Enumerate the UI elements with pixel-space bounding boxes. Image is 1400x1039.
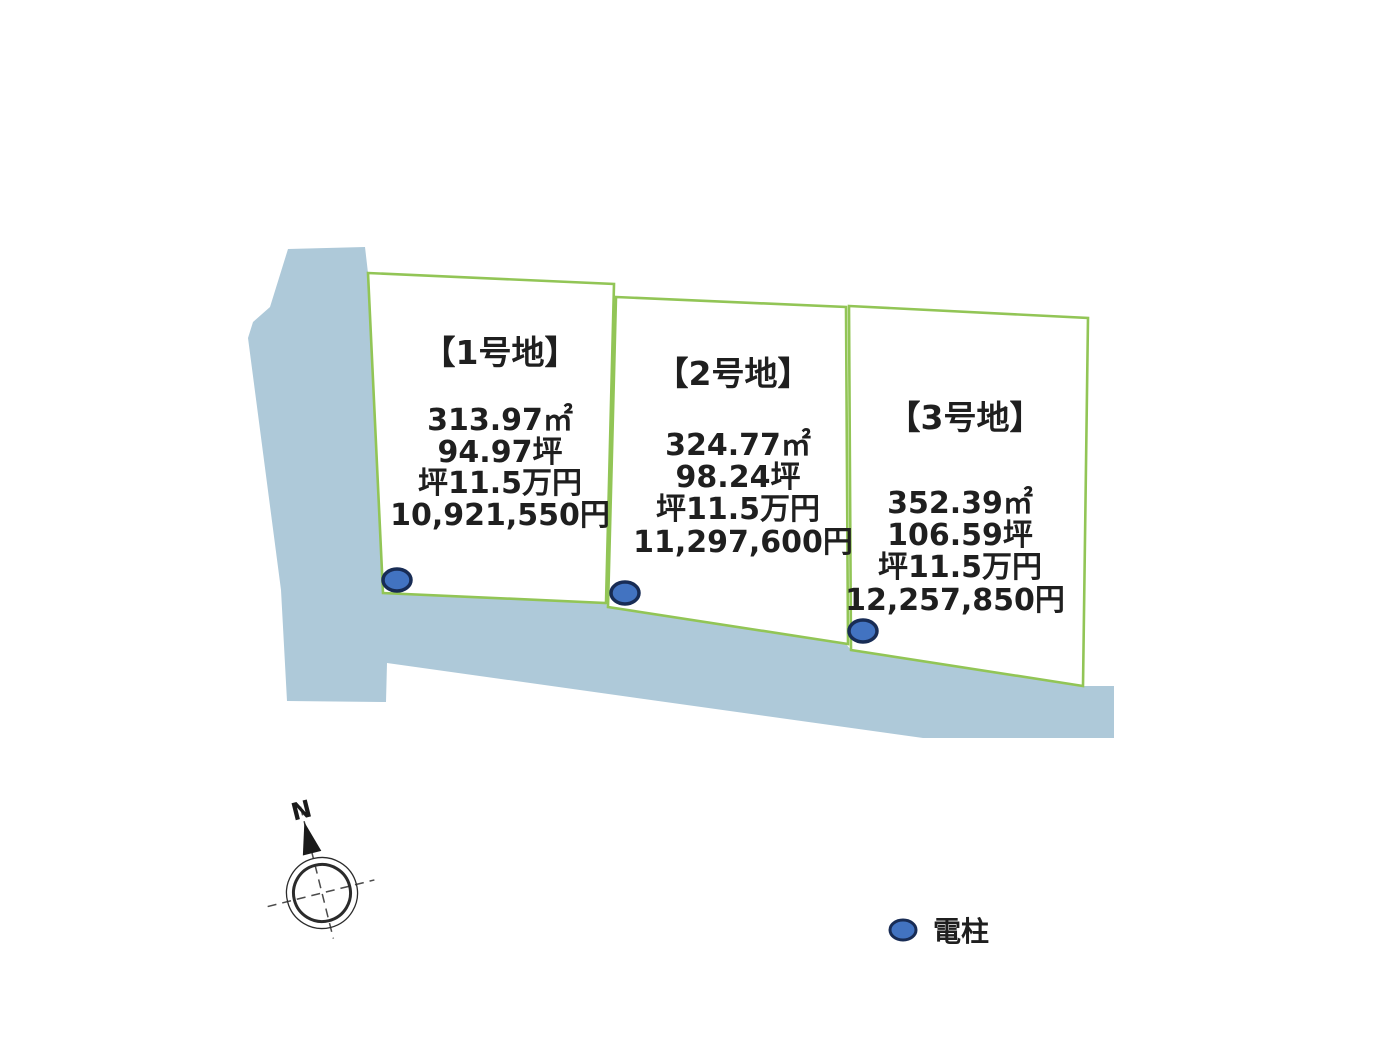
utility-pole-marker-1 (383, 569, 411, 591)
compass: N (244, 784, 386, 952)
plot-3-label: 【3号地】 (888, 398, 1043, 437)
plot-3-area-tsubo: 106.59坪 (887, 518, 1033, 553)
plot-2-area-tsubo: 98.24坪 (676, 460, 801, 495)
plot-2-total-price: 11,297,600円 (633, 525, 853, 560)
plot-3-total-price: 12,257,850円 (845, 583, 1065, 618)
plot-3-area-m2: 352.39㎡ (887, 486, 1033, 521)
plot-2-label: 【2号地】 (656, 354, 811, 393)
legend-pole-icon (890, 920, 916, 940)
plot-1-area-m2: 313.97㎡ (427, 403, 573, 438)
plot-1-total-price: 10,921,550円 (390, 498, 610, 533)
legend-pole-label: 電柱 (933, 915, 989, 948)
utility-pole-marker-2 (611, 582, 639, 604)
plot-2-unit-price: 坪11.5万円 (656, 492, 820, 527)
plot-1-area-tsubo: 94.97坪 (438, 435, 563, 470)
utility-pole-marker-3 (849, 620, 877, 642)
site-plan-page: 【1号地】 313.97㎡ 94.97坪 坪11.5万円 10,921,550円… (0, 0, 1400, 1039)
compass-inner-ring (287, 858, 356, 927)
plot-3-unit-price: 坪11.5万円 (878, 550, 1042, 585)
plot-1-unit-price: 坪11.5万円 (418, 466, 582, 501)
compass-outer-ring (279, 850, 365, 936)
compass-north-label: N (288, 795, 314, 827)
plot-1-label: 【1号地】 (423, 333, 578, 372)
legend: 電柱 (890, 915, 989, 948)
plot-2-area-m2: 324.77㎡ (665, 428, 811, 463)
compass-axis-ew (268, 880, 375, 907)
site-plan-drawing: 【1号地】 313.97㎡ 94.97坪 坪11.5万円 10,921,550円… (0, 0, 1400, 1039)
